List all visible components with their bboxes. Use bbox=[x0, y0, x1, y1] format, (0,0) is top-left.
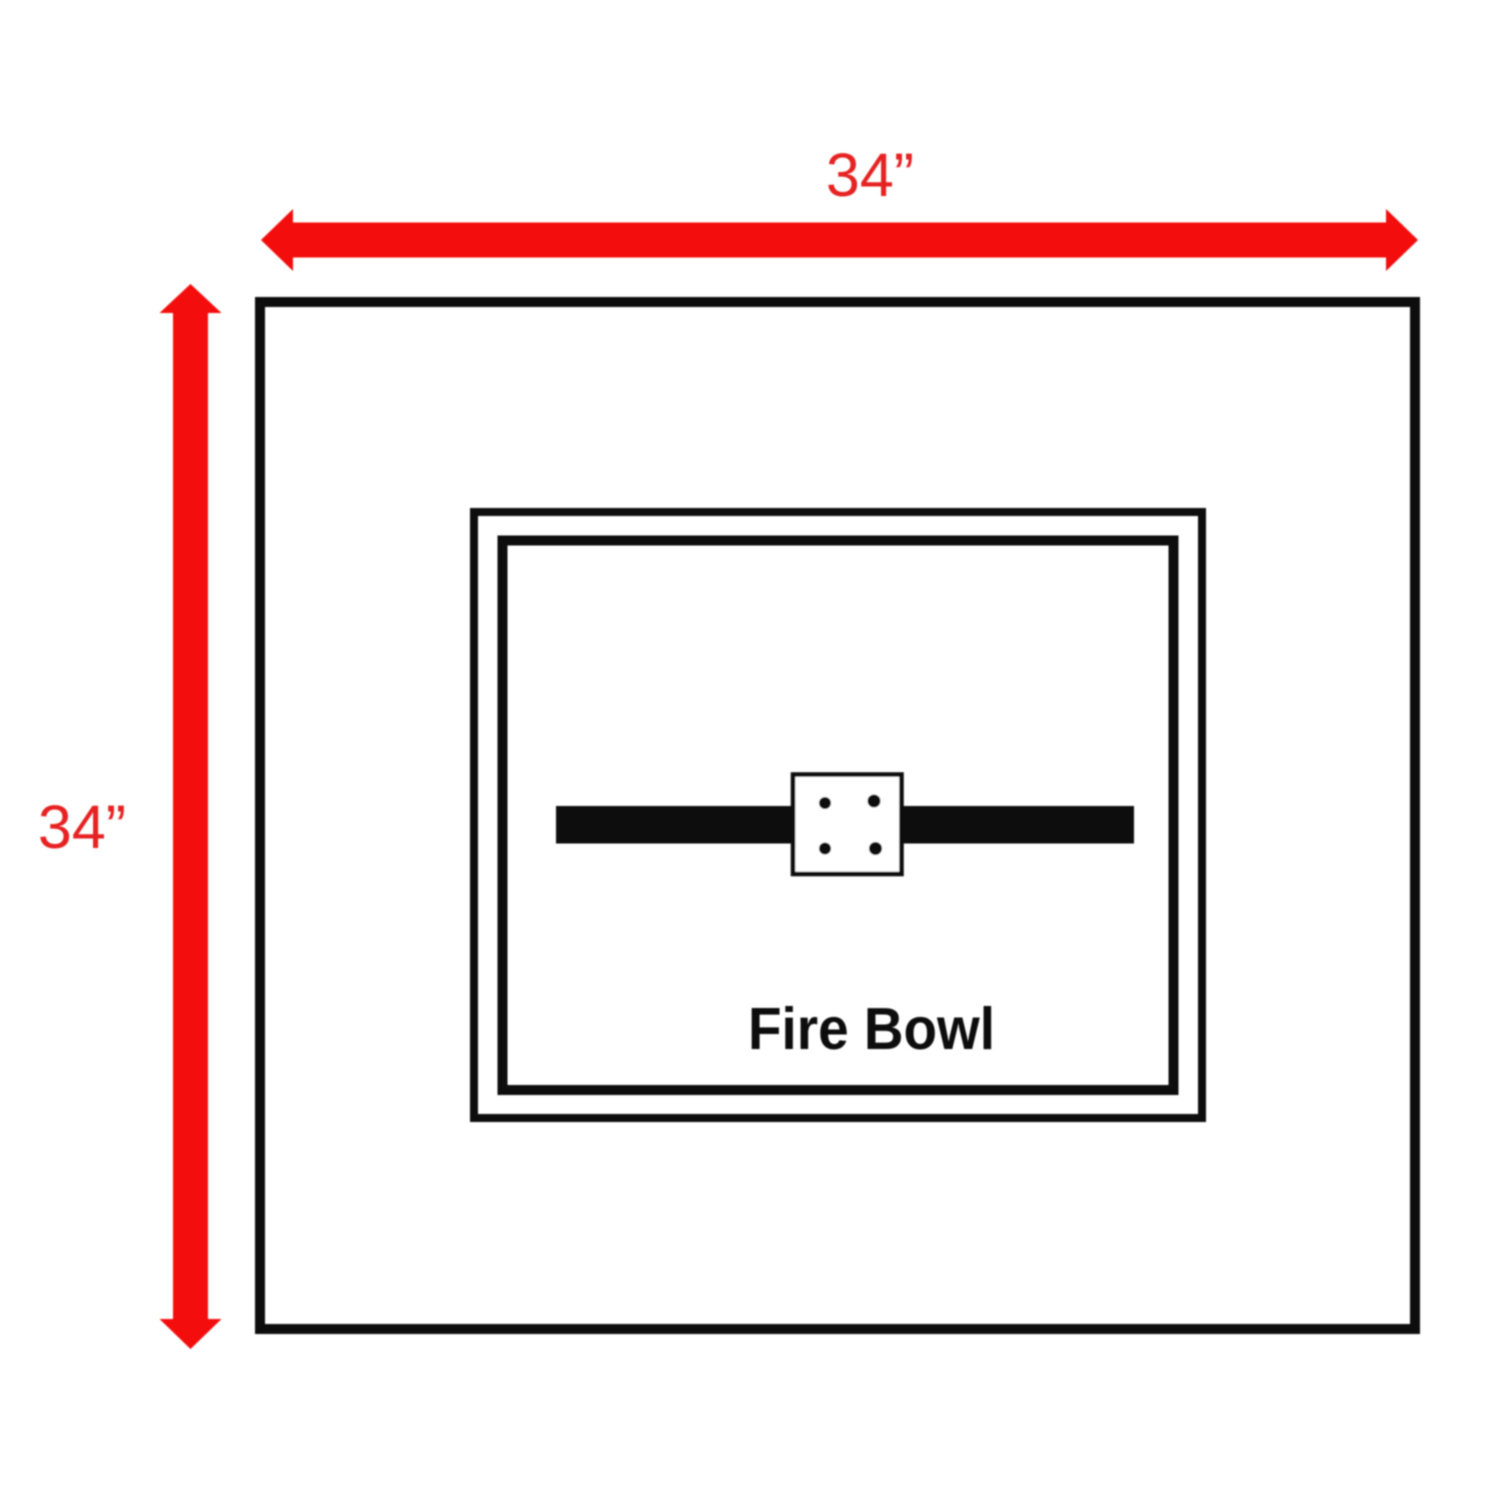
svg-text:Fire Bowl: Fire Bowl bbox=[748, 996, 995, 1062]
svg-text:34”: 34” bbox=[826, 141, 914, 209]
svg-text:34”: 34” bbox=[38, 793, 126, 861]
